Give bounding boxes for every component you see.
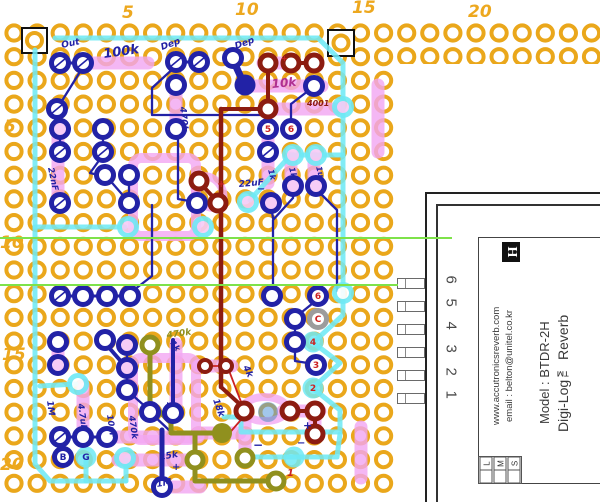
component-label: 1M — [44, 400, 56, 417]
pad-ring — [97, 167, 114, 184]
board-hole — [29, 476, 44, 491]
module-model-text: Model : BTDR-2H — [537, 283, 552, 463]
board-hole — [376, 168, 391, 183]
board-hole — [99, 262, 114, 277]
board-hole — [399, 25, 414, 40]
board-hole — [6, 191, 21, 206]
board-hole — [191, 286, 206, 301]
grid-coordinate-label: 10 — [235, 0, 259, 20]
pad-glyph: 6 — [315, 292, 321, 302]
board-hole — [261, 310, 276, 325]
board-hole — [237, 381, 252, 396]
grid-coordinate-label: 5 — [122, 3, 134, 23]
board-hole — [6, 144, 21, 159]
pad-ring — [307, 403, 323, 419]
board-hole — [492, 25, 507, 40]
board-hole — [353, 357, 368, 372]
board-hole — [376, 239, 391, 254]
pad-ring — [263, 195, 280, 212]
grid-reference-line — [0, 237, 452, 239]
board-hole — [6, 476, 21, 491]
board-hole — [53, 239, 68, 254]
board-hole — [6, 49, 21, 64]
component-label: 1 — [287, 468, 294, 479]
board-hole — [122, 73, 137, 88]
label-swoosh-graphic — [587, 248, 600, 476]
board-hole — [284, 357, 299, 372]
module-pin-tip — [402, 325, 406, 334]
pad-ring — [335, 285, 352, 302]
module-pin-tip — [402, 279, 406, 288]
pad-ring — [75, 288, 92, 305]
board-hole — [99, 381, 114, 396]
board-hole — [492, 49, 507, 64]
board-hole — [6, 25, 21, 40]
board-hole — [145, 168, 160, 183]
board-hole — [76, 310, 91, 325]
board-hole — [353, 310, 368, 325]
size-table-cell: M — [494, 457, 507, 471]
board-hole — [353, 262, 368, 277]
pad-glyph: 4 — [310, 338, 316, 348]
grid-coordinate-label: 5 — [4, 117, 16, 137]
module-pin — [397, 370, 425, 381]
pad-disc — [235, 75, 256, 96]
board-hole — [237, 334, 252, 349]
board-hole — [168, 286, 183, 301]
board-hole — [376, 310, 391, 325]
pad-ring — [122, 288, 139, 305]
pad-disc — [284, 447, 305, 468]
pad-ring — [168, 77, 185, 94]
module-url-text: www.accutronicsreverb.com — [491, 266, 502, 466]
board-hole — [353, 97, 368, 112]
board-hole — [445, 25, 460, 40]
board-hole — [6, 73, 21, 88]
module-pin-tip — [402, 348, 406, 357]
grid-coordinate-label: 10 — [0, 233, 24, 253]
board-hole — [422, 49, 437, 64]
pad-ring — [119, 337, 136, 354]
board-hole — [237, 239, 252, 254]
board-hole — [353, 144, 368, 159]
board-hole — [307, 120, 322, 135]
pad-ring — [225, 50, 242, 67]
component-label: − — [257, 184, 265, 195]
board-hole — [353, 286, 368, 301]
pad-disc — [212, 423, 232, 443]
board-hole — [76, 120, 91, 135]
grid-coordinate-label: 20 — [0, 455, 24, 475]
board-hole — [261, 452, 276, 467]
board-hole — [53, 73, 68, 88]
component-box-outline — [133, 358, 196, 440]
pad-glyph: 6 — [288, 125, 294, 135]
pad-glyph: G — [82, 453, 89, 463]
board-hole — [330, 334, 345, 349]
pad-ring — [117, 450, 134, 467]
pad-ring — [285, 147, 302, 164]
pad-ring — [121, 195, 138, 212]
board-hole — [168, 262, 183, 277]
pad-ring — [97, 332, 114, 349]
pad-ring — [142, 337, 158, 353]
board-hole — [214, 73, 229, 88]
pad-ring — [306, 55, 322, 71]
module-pin — [397, 278, 425, 289]
board-hole — [122, 239, 137, 254]
component-label: + — [281, 54, 288, 63]
screenshot-root: 5642G63CBOut100kDepDep470k10k4001+22nF1k… — [0, 0, 600, 502]
pad-ring — [264, 288, 281, 305]
module-pin-number: 4 — [443, 322, 460, 336]
board-hole — [353, 49, 368, 64]
board-hole — [353, 168, 368, 183]
board-hole — [168, 215, 183, 230]
board-hole — [191, 262, 206, 277]
pad-ring — [210, 195, 226, 211]
pad-ring — [142, 404, 159, 421]
board-hole — [237, 215, 252, 230]
board-hole — [122, 97, 137, 112]
pad-ring — [195, 219, 212, 236]
pad-glyph: 5 — [265, 125, 271, 135]
board-hole — [307, 452, 322, 467]
board-hole — [99, 73, 114, 88]
module-pin — [397, 393, 425, 404]
board-hole — [468, 49, 483, 64]
pad-ring — [236, 403, 252, 419]
board-hole — [6, 428, 21, 443]
pad-ring — [308, 178, 325, 195]
board-hole — [515, 49, 530, 64]
board-hole — [261, 357, 276, 372]
board-hole — [284, 381, 299, 396]
board-hole — [284, 262, 299, 277]
board-hole — [122, 120, 137, 135]
board-hole — [214, 452, 229, 467]
board-hole — [584, 49, 599, 64]
pad-ring — [50, 334, 67, 351]
board-hole — [76, 191, 91, 206]
pad-ring — [75, 429, 92, 446]
white-cover — [396, 64, 600, 190]
pad-ring — [189, 195, 206, 212]
board-hole — [76, 144, 91, 159]
module-pin-number: 6 — [443, 276, 460, 290]
board-hole — [399, 49, 414, 64]
board-hole — [191, 120, 206, 135]
pad-ring — [119, 382, 136, 399]
board-hole — [145, 381, 160, 396]
module-pin-tip — [402, 302, 406, 311]
board-hole — [376, 25, 391, 40]
board-hole — [376, 381, 391, 396]
board-hole — [237, 120, 252, 135]
size-table-cell: S — [508, 457, 521, 471]
board-hole — [6, 405, 21, 420]
board-hole — [191, 73, 206, 88]
board-hole — [307, 476, 322, 491]
board-hole — [6, 381, 21, 396]
board-hole — [468, 25, 483, 40]
board-hole — [284, 215, 299, 230]
board-hole — [284, 239, 299, 254]
pad-ring — [260, 55, 276, 71]
module-pin — [397, 324, 425, 335]
board-hole — [515, 25, 530, 40]
board-hole — [376, 262, 391, 277]
board-hole — [191, 310, 206, 325]
pad-ring — [99, 288, 116, 305]
pad-ring — [121, 167, 138, 184]
board-hole — [99, 97, 114, 112]
pad-ring — [287, 311, 304, 328]
module-pin — [397, 347, 425, 358]
pad-ring — [199, 360, 211, 372]
pad-ring — [95, 121, 112, 138]
board-hole — [376, 405, 391, 420]
pad-ring — [237, 450, 253, 466]
board-hole — [284, 286, 299, 301]
size-table-cell — [508, 470, 521, 484]
board-hole — [330, 381, 345, 396]
board-hole — [237, 310, 252, 325]
board-hole — [561, 49, 576, 64]
board-hole — [376, 428, 391, 443]
board-hole — [76, 97, 91, 112]
board-hole — [376, 191, 391, 206]
board-hole — [353, 191, 368, 206]
board-hole — [353, 334, 368, 349]
board-hole — [168, 168, 183, 183]
board-hole — [99, 191, 114, 206]
component-box-outline — [133, 158, 196, 236]
board-hole — [145, 120, 160, 135]
pad-ring — [187, 452, 203, 468]
board-hole — [307, 215, 322, 230]
pad-glyph: B — [60, 453, 67, 463]
pad-ring — [268, 473, 284, 489]
grid-coordinate-label: 15 — [2, 345, 26, 365]
board-hole — [6, 310, 21, 325]
board-hole — [53, 310, 68, 325]
board-hole — [76, 239, 91, 254]
grid-coordinate-label: 15 — [352, 0, 376, 18]
reverb-module-label: H www.accutronicsreverb.com email : belt… — [478, 237, 600, 484]
board-hole — [168, 310, 183, 325]
board-hole — [376, 476, 391, 491]
size-table-cell: L — [480, 457, 493, 471]
board-hole — [76, 168, 91, 183]
board-hole — [376, 215, 391, 230]
pad-ring — [287, 334, 304, 351]
module-size-table: LMS — [478, 456, 522, 484]
board-hole — [376, 286, 391, 301]
module-email-text: email : belton@unitel.co.kr — [504, 266, 515, 466]
board-hole — [353, 25, 368, 40]
pad-glyph: C — [315, 315, 322, 325]
pad-ring — [282, 403, 298, 419]
board-hole — [237, 262, 252, 277]
component-label: + — [303, 419, 312, 432]
component-label: 470k — [165, 327, 193, 341]
grid-coordinate-label: 20 — [468, 2, 492, 22]
component-label: − — [253, 438, 263, 452]
board-hole — [561, 25, 576, 40]
board-hole — [237, 286, 252, 301]
module-pin-number: 2 — [443, 368, 460, 382]
board-hole — [6, 262, 21, 277]
component-label: − — [297, 438, 305, 449]
size-table-cell — [494, 470, 507, 484]
board-hole — [584, 25, 599, 40]
board-hole — [122, 262, 137, 277]
board-hole — [145, 310, 160, 325]
board-hole — [307, 239, 322, 254]
board-hole — [376, 357, 391, 372]
board-hole — [353, 405, 368, 420]
board-hole — [538, 49, 553, 64]
pad-ring — [306, 78, 323, 95]
module-pin-tip — [402, 394, 406, 403]
board-hole — [6, 97, 21, 112]
board-hole — [191, 334, 206, 349]
board-hole — [76, 262, 91, 277]
component-label: 10k — [271, 75, 298, 91]
pad-glyph: 2 — [310, 384, 316, 394]
board-hole — [422, 25, 437, 40]
component-label: + — [217, 179, 225, 190]
pad-ring — [50, 357, 67, 374]
board-hole — [191, 239, 206, 254]
module-pin-number: 3 — [443, 345, 460, 359]
board-hole — [145, 286, 160, 301]
grid-reference-line — [0, 284, 398, 286]
pad-ring — [70, 376, 87, 393]
board-hole — [261, 334, 276, 349]
board-hole — [145, 73, 160, 88]
module-name-text: Digi-Log™ Reverb — [555, 283, 571, 463]
board-hole — [376, 49, 391, 64]
pad-ring — [119, 360, 136, 377]
board-hole — [353, 215, 368, 230]
pad-ring — [240, 194, 257, 211]
board-hole — [191, 97, 206, 112]
board-hole — [353, 120, 368, 135]
board-hole — [6, 286, 21, 301]
board-hole — [76, 334, 91, 349]
board-hole — [445, 49, 460, 64]
module-pin — [397, 301, 425, 312]
board-hole — [353, 73, 368, 88]
component-label: 4001 — [306, 99, 329, 108]
board-hole — [6, 168, 21, 183]
pad-ring — [260, 101, 276, 117]
pad-ring — [308, 147, 325, 164]
board-hole — [99, 357, 114, 372]
pad-ring — [220, 360, 232, 372]
module-pin-number: 1 — [443, 391, 460, 405]
board-hole — [237, 144, 252, 159]
board-hole — [330, 476, 345, 491]
board-hole — [53, 262, 68, 277]
pad-ring — [335, 99, 352, 116]
board-hole — [99, 310, 114, 325]
component-label: + — [172, 462, 180, 473]
board-hole — [122, 310, 137, 325]
module-pin-tip — [402, 371, 406, 380]
board-hole — [376, 452, 391, 467]
module-pin-number: 5 — [443, 299, 460, 313]
board-hole — [538, 25, 553, 40]
board-hole — [6, 215, 21, 230]
pad-ring — [165, 405, 182, 422]
board-hole — [99, 239, 114, 254]
board-hole — [353, 381, 368, 396]
board-hole — [307, 262, 322, 277]
pad-ring — [285, 178, 302, 195]
pad-ring — [52, 121, 69, 138]
board-hole — [353, 239, 368, 254]
pad-ring — [191, 173, 207, 189]
pad-ring — [120, 219, 137, 236]
size-table-cell — [480, 470, 493, 484]
belton-logo: H — [502, 242, 520, 262]
capacitor-body-mark — [258, 402, 278, 422]
board-hole — [76, 357, 91, 372]
pad-glyph: 3 — [313, 361, 319, 371]
board-hole — [376, 334, 391, 349]
